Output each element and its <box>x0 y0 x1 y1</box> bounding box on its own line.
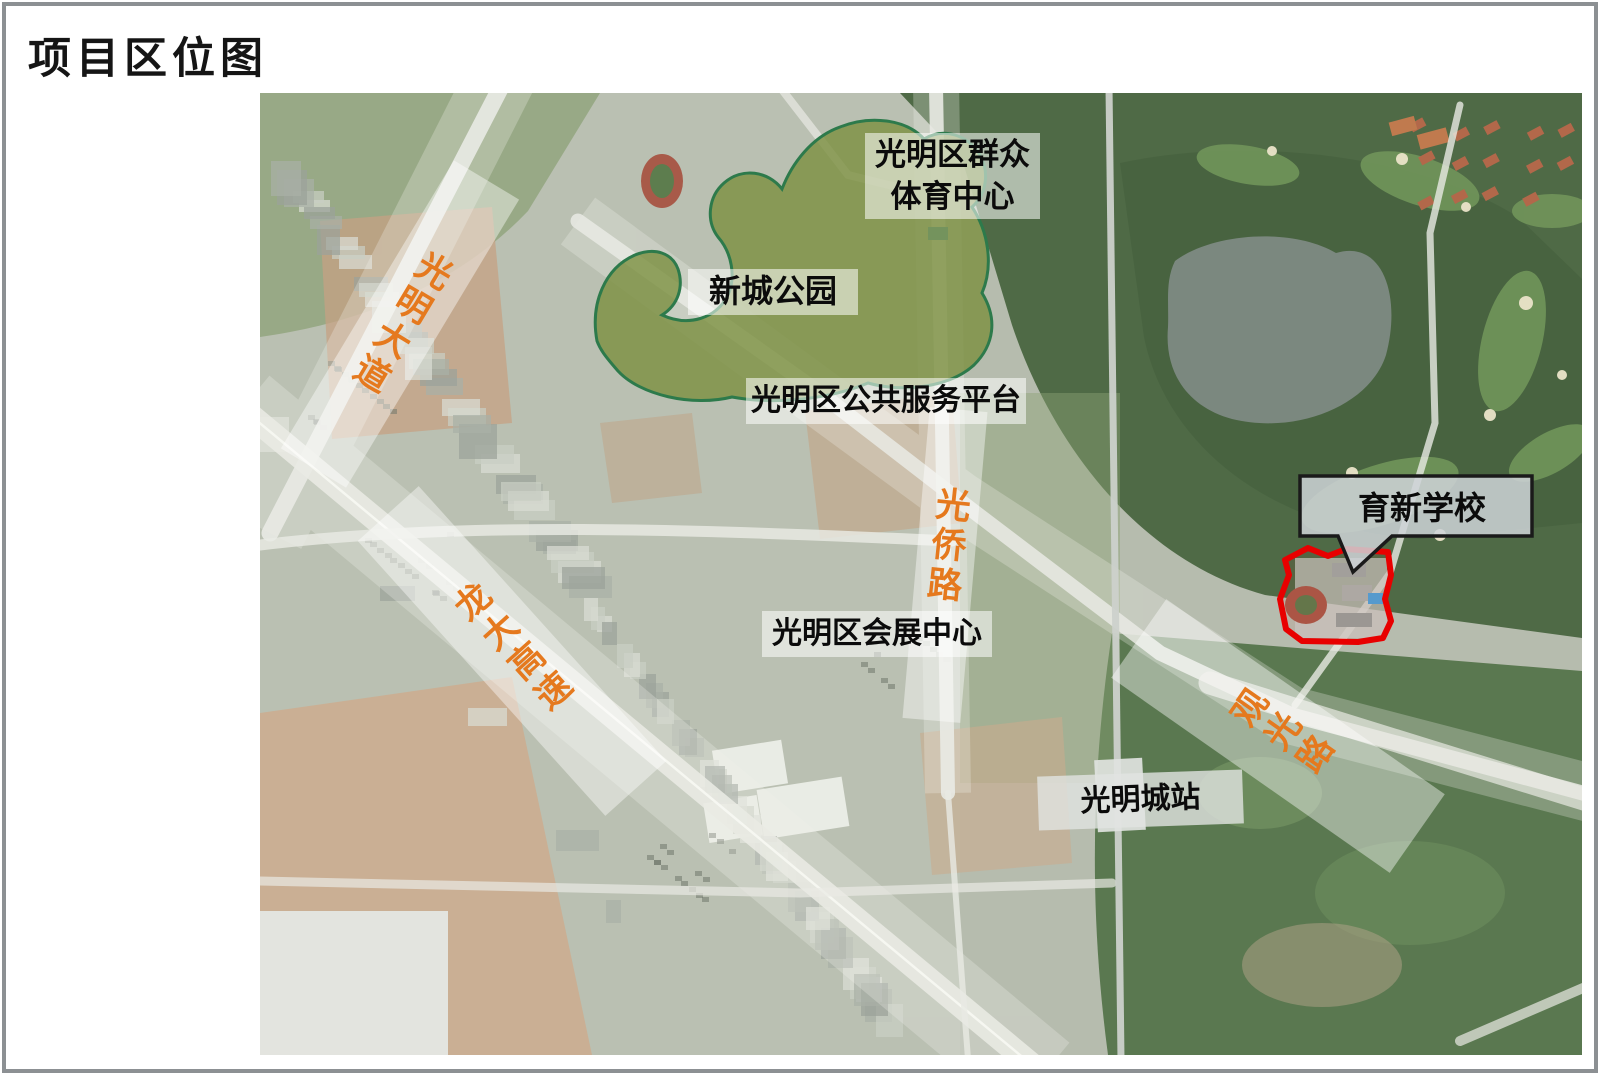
satellite-map: 光明大道 龙大高速 光侨路 观光路 光明区群众 体育中心 新城公园 光明区公共服… <box>260 93 1582 1055</box>
label-guangmingcheng-station: 光明城站 <box>1037 769 1244 830</box>
greenhouse-sheds <box>260 911 448 1055</box>
label-sports-center-line2: 体育中心 <box>891 176 1015 218</box>
project-site-outline <box>1280 548 1391 642</box>
slide-frame: 项目区位图 <box>2 2 1598 1073</box>
label-yuxin-school: 育新学校 <box>1312 481 1532 531</box>
label-convention-center: 光明区会展中心 <box>762 611 992 657</box>
label-service-platform: 光明区公共服务平台 <box>746 378 1026 424</box>
page-title: 项目区位图 <box>28 24 268 86</box>
label-xincheng-park: 新城公园 <box>688 269 858 315</box>
label-sports-center: 光明区群众 体育中心 <box>865 133 1040 219</box>
label-sports-center-line1: 光明区群众 <box>875 134 1030 176</box>
